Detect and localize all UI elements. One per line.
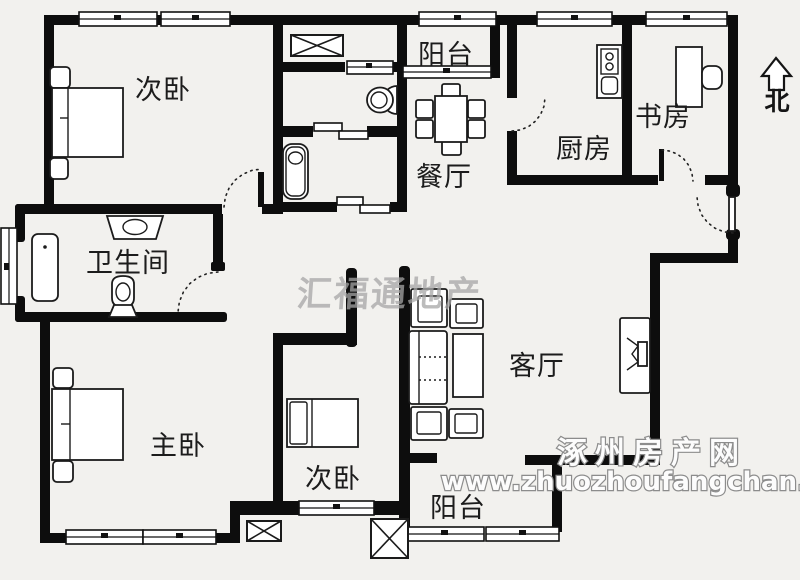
room-label-balcony-bottom: 阳台: [430, 493, 486, 524]
door-swing-arc: [178, 272, 218, 312]
room-label-master-bedroom: 主卧: [150, 431, 206, 462]
watermark-site-url: www.zhuozhoufangchan.com: [441, 467, 800, 497]
room-label-bathroom: 卫生间: [86, 248, 170, 279]
room-label-bedroom-bottom: 次卧: [305, 464, 361, 495]
bay-window-icon: [1, 228, 17, 304]
room-label-living: 客厅: [509, 351, 565, 382]
floor-plan-drawing: 次卧 阳台 餐厅 厨房 书房 卫生间 客厅 主卧 次卧 阳台 北 汇福通地产 涿…: [0, 0, 800, 580]
north-compass: 北: [762, 58, 791, 116]
sink-icon: [107, 216, 163, 239]
toilet-icon: [109, 276, 137, 317]
toilet-icon: [367, 86, 397, 114]
column-icon: [371, 519, 408, 558]
desk-icon: [676, 47, 722, 107]
entry-door-leaf: [729, 197, 735, 231]
cabinet-icon: [32, 234, 58, 301]
dining-table-icon: [416, 84, 485, 155]
north-label: 北: [764, 87, 789, 116]
watermark-site-name: 涿州房产网: [557, 436, 747, 471]
watermark-center-brand: 汇福通地产: [296, 274, 484, 315]
stove-icon: [597, 45, 622, 98]
room-label-bedroom-top-left: 次卧: [135, 75, 191, 106]
door-swing-arc: [224, 169, 262, 207]
tv-icon: [620, 318, 650, 393]
door-swing-arc: [697, 197, 733, 233]
wardrobe-icon: [291, 35, 343, 56]
bed-icon: [50, 67, 123, 179]
room-label-study: 书房: [635, 102, 691, 133]
room-label-kitchen: 厨房: [556, 134, 612, 165]
room-label-dining: 餐厅: [416, 162, 472, 193]
door-leaf: [659, 149, 664, 181]
bathtub-icon: [283, 144, 308, 199]
bed-icon: [52, 368, 123, 482]
floor-plan-page: 次卧 阳台 餐厅 厨房 书房 卫生间 客厅 主卧 次卧 阳台 北 汇福通地产 涿…: [0, 0, 800, 580]
door-leaf: [258, 172, 264, 207]
bed-icon: [287, 399, 358, 447]
column-icon: [247, 521, 281, 541]
north-arrow-icon: [762, 58, 791, 90]
door-swing-arc: [662, 150, 693, 181]
door-swing-arc: [512, 98, 545, 131]
room-label-balcony-top: 阳台: [418, 40, 474, 71]
